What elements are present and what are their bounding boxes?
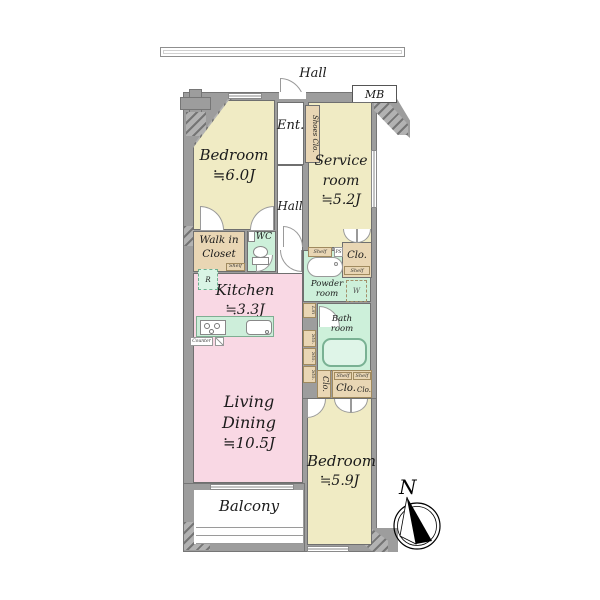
corridor-bar-inner [163, 50, 402, 54]
label-living-size: ≒10.5J [195, 434, 303, 454]
closet-shelf-a: Shelf [334, 372, 352, 380]
storage-box-1: Sto. [303, 330, 316, 347]
closet-upper-shelf: Shelf [344, 266, 370, 275]
label-closet-tall: Clo. [321, 376, 330, 392]
burner-icon [214, 323, 220, 329]
label-walk-in-closet: Walk in Closet [195, 234, 243, 261]
entrance-opening [279, 92, 306, 99]
label-service-line2: room [311, 172, 371, 192]
corridor-bar [160, 47, 405, 57]
label-wc: WC [252, 232, 276, 244]
label-ps: PS [335, 250, 341, 255]
label-fridge: R [205, 276, 210, 284]
burner-icon [204, 323, 210, 329]
label-kitchen: Kitchen ≒3.3J [208, 281, 282, 319]
label-bedroom1: Bedroom ≒6.0J [198, 146, 270, 185]
linen-box: Lin [303, 303, 316, 318]
label-closet-wide: Clo. [334, 382, 358, 395]
label-bedroom2-size: ≒5.9J [307, 472, 372, 490]
label-bath-line2: room [321, 324, 363, 334]
ps-box-kitchen [215, 337, 224, 346]
label-closet-upper-shelf: Shelf [350, 268, 363, 274]
balcony-railing-line [196, 527, 303, 528]
label-hall: Hall [277, 199, 303, 215]
window-bedroom2-bottom [307, 546, 349, 552]
label-storage-3: Sto. [310, 370, 316, 380]
bathtub-icon [322, 338, 367, 367]
compass-north-label: N [398, 475, 418, 499]
label-closet-upper: Clo. [342, 249, 372, 262]
label-bath-line1: Bath [321, 314, 363, 324]
window-bedroom1-top [228, 93, 262, 99]
label-service-shelf: Shelf [313, 249, 326, 255]
mailbox-box: MB [352, 85, 397, 103]
shoes-closet-label: Shoes Clo. [311, 115, 319, 152]
label-service: Service room ≒5.2J [311, 152, 371, 211]
label-bedroom1-name: Bedroom [198, 146, 270, 166]
closet-tall: Clo. [317, 370, 331, 398]
sink-icon [246, 320, 272, 335]
label-storage-2: Sto. [310, 352, 316, 362]
window-service-right [371, 150, 377, 208]
label-powder-line2: room [305, 289, 349, 299]
floor-plan: Hall MB Shoes Clo. [0, 0, 600, 600]
fridge-box: R [198, 269, 218, 290]
label-bedroom2: Bedroom ≒5.9J [307, 452, 372, 490]
label-closet-shelf-b: Shelf [355, 373, 368, 379]
label-wic-line1: Walk in [195, 234, 243, 248]
label-closet-shelf-a: Shelf [336, 373, 349, 379]
closet-shelf-b: Shelf [353, 372, 371, 380]
label-powder: Powder room [305, 279, 349, 299]
label-closet-small: Clo. [357, 386, 371, 395]
kitchen-counter [196, 316, 274, 337]
label-bedroom2-name: Bedroom [307, 452, 372, 472]
closet-wide: Shelf Shelf Clo. Clo. [332, 370, 372, 398]
storage-box-2: Sto. [303, 348, 316, 365]
label-balcony: Balcony [207, 497, 291, 517]
burner-icon [209, 329, 214, 334]
wall-pillar-horizontal [180, 97, 211, 110]
label-bedroom1-size: ≒6.0J [198, 166, 270, 186]
label-powder-line1: Powder [305, 279, 349, 289]
service-shelf: Shelf [308, 247, 332, 257]
faucet-icon [265, 330, 269, 334]
wic-shelf: Shelf [226, 263, 245, 271]
compass: N [386, 470, 448, 558]
label-living-name: Living Dining [195, 392, 303, 434]
label-kitchen-name: Kitchen [208, 281, 282, 301]
washbasin-faucet-icon [334, 262, 338, 266]
toilet-tank-icon [252, 257, 269, 265]
label-entrance: Ent. [277, 118, 304, 135]
label-wic-shelf: Shelf [229, 263, 242, 269]
label-bath: Bath room [321, 314, 363, 334]
outside-hall-label: Hall [292, 66, 334, 83]
label-service-line1: Service [311, 152, 371, 172]
toilet-basin-icon [248, 231, 255, 242]
storage-box-3: Sto. [303, 366, 316, 383]
label-living: Living Dining ≒10.5J [195, 392, 303, 453]
balcony-railing-line [196, 535, 303, 536]
label-linen: Lin [310, 306, 316, 314]
washbasin-icon [307, 257, 343, 277]
counter-box: Counter [190, 337, 213, 346]
label-service-size: ≒5.2J [311, 191, 371, 211]
window-living-bottom [210, 484, 294, 490]
balcony-railing-line [196, 543, 303, 544]
label-storage-1: Sto. [310, 334, 316, 344]
label-wic-line2: Closet [195, 248, 243, 262]
label-counter: Counter [192, 339, 211, 344]
mailbox-label: MB [365, 88, 384, 101]
label-washer: W [353, 287, 360, 295]
stove-icon [200, 320, 226, 335]
washer-box: W [346, 280, 367, 302]
